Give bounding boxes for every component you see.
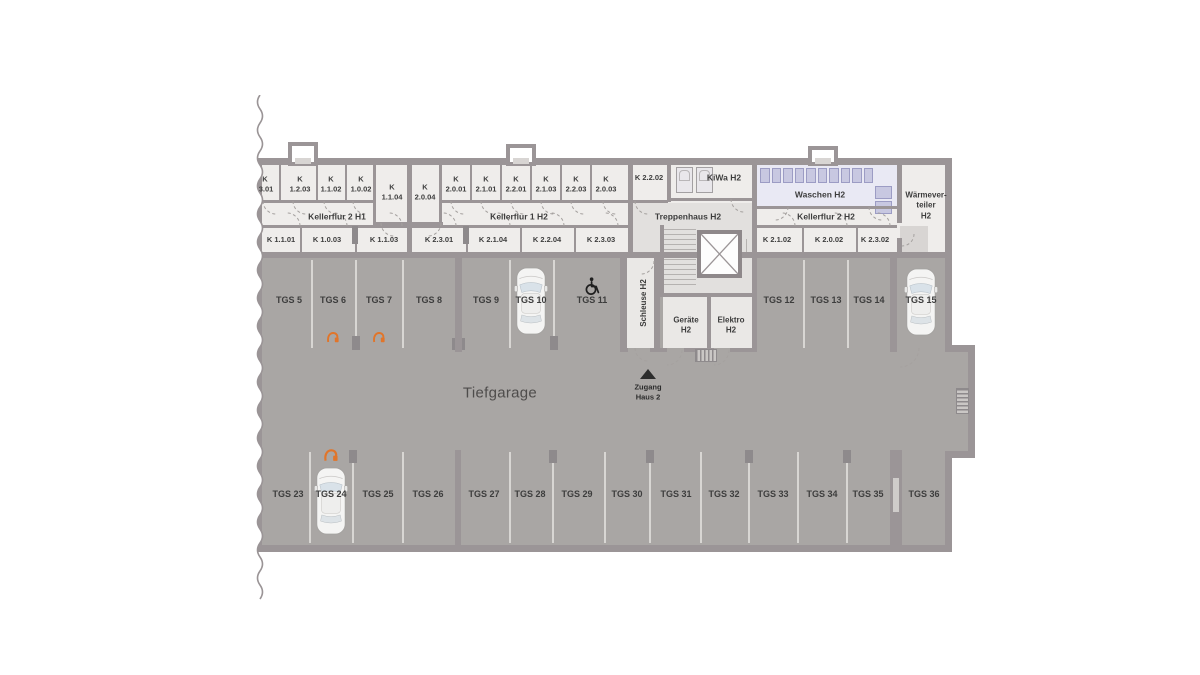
- room-label-k-1-0-02: K 1.0.02: [351, 174, 372, 194]
- room-label-geraete: Geräte H2: [673, 316, 698, 337]
- parking-spot-tgs-36: TGS 36: [908, 489, 939, 501]
- parking-spot-tgs-14: TGS 14: [853, 295, 884, 307]
- room-label-k-1-2-03: K 1.2.03: [290, 174, 311, 194]
- parking-divider: [797, 452, 799, 543]
- room-label-waschen: Waschen H2: [795, 189, 845, 200]
- wall: [373, 165, 376, 222]
- column: [349, 450, 357, 463]
- parking-divider: [352, 452, 354, 543]
- parking-spot-tgs-27: TGS 27: [468, 489, 499, 501]
- wall: [757, 225, 897, 228]
- wall: [530, 165, 532, 200]
- parking-spot-tgs-31: TGS 31: [660, 489, 691, 501]
- parking-divider: [803, 260, 805, 348]
- column: [549, 450, 557, 463]
- room-label-k-2-2-02: K 2.2.02: [635, 173, 663, 183]
- washing-machine-icon: [772, 168, 782, 183]
- corridor-label-kellerflur-1-h2: Kellerflur 1 H2: [490, 211, 548, 222]
- stroller-icon: [676, 167, 693, 193]
- parking-spot-tgs-32: TGS 32: [708, 489, 739, 501]
- wall: [671, 198, 752, 201]
- room-label-k-2-3-02: K 2.3.02: [861, 235, 889, 245]
- parking-spot-tgs-23: TGS 23: [272, 489, 303, 501]
- room-label-k-3-01: K .3.01: [257, 174, 274, 194]
- room-label-k-2-1-04: K 2.1.04: [479, 235, 507, 245]
- wall: [650, 348, 667, 352]
- ev-charging-icon: [323, 448, 338, 463]
- parking-divider: [847, 260, 849, 348]
- parking-spot-tgs-35: TGS 35: [852, 489, 883, 501]
- parking-divider: [604, 452, 606, 543]
- washing-machine-icon: [795, 168, 805, 183]
- wall: [897, 165, 902, 223]
- parking-spot-tgs-10: TGS 10: [515, 295, 546, 307]
- washing-machine-icon: [864, 168, 874, 183]
- parking-divider: [509, 452, 511, 543]
- washing-machine-icon: [841, 168, 851, 183]
- parking-divider: [649, 452, 651, 543]
- parking-spot-tgs-13: TGS 13: [810, 295, 841, 307]
- parking-spot-tgs-8: TGS 8: [416, 295, 442, 307]
- room-label-k-2-2-04: K 2.2.04: [533, 235, 561, 245]
- wall: [897, 238, 902, 252]
- washing-machine-icon: [806, 168, 816, 183]
- parking-spot-tgs-28: TGS 28: [514, 489, 545, 501]
- room-label-kiwa: KiWa H2: [707, 172, 741, 183]
- wall: [442, 200, 628, 203]
- room-label-k-2-2-03: K 2.2.03: [566, 174, 587, 194]
- wall: [890, 252, 897, 352]
- washing-machine-icon: [818, 168, 828, 183]
- column: [352, 336, 360, 350]
- wall: [660, 293, 752, 297]
- wall: [455, 258, 462, 352]
- washing-machine-icon: [760, 168, 770, 183]
- room-label-k-2-0-03: K 2.0.03: [596, 174, 617, 194]
- light-well-sill: [815, 158, 831, 164]
- parking-spot-tgs-33: TGS 33: [757, 489, 788, 501]
- floor-plan: K .3.01 K 1.2.03 K 1.1.02 K 1.0.02 K 1.1…: [0, 0, 1200, 675]
- wall: [757, 206, 897, 209]
- wall: [802, 228, 804, 252]
- room-label-k-2-0-02: K 2.0.02: [815, 235, 843, 245]
- washing-machine-icon: [783, 168, 793, 183]
- access-arrow-icon: [640, 369, 656, 379]
- ev-charging-icon: [372, 331, 385, 344]
- parking-divider: [402, 260, 404, 348]
- parking-spot-tgs-25: TGS 25: [362, 489, 393, 501]
- parking-divider: [402, 452, 404, 543]
- parking-spot-tgs-6: TGS 6: [320, 295, 346, 307]
- room-label-k-1-1-03: K 1.1.03: [370, 235, 398, 245]
- room-label-k-2-1-03: K 2.1.03: [536, 174, 557, 194]
- wall: [628, 165, 633, 252]
- wall: [590, 165, 592, 200]
- room-label-k-1-1-04: K 1.1.04: [382, 182, 403, 202]
- car-icon: [314, 460, 348, 542]
- wall: [752, 165, 757, 352]
- room-label-k-2-0-01: K 2.0.01: [446, 174, 467, 194]
- wall: [262, 225, 407, 228]
- room-label-k-1-1-02: K 1.1.02: [321, 174, 342, 194]
- wall: [520, 228, 522, 252]
- room-label-elektro: Elektro H2: [717, 316, 744, 337]
- elevator-icon: [697, 230, 742, 278]
- wall: [707, 296, 711, 348]
- parking-divider: [748, 452, 750, 543]
- parking-divider: [311, 260, 313, 348]
- wall: [890, 345, 897, 352]
- wall: [574, 228, 576, 252]
- room-label-k-2-1-02: K 2.1.02: [763, 235, 791, 245]
- garage-title: Tiefgarage: [463, 383, 537, 403]
- door-post: [463, 226, 469, 244]
- parking-spot-tgs-7: TGS 7: [366, 295, 392, 307]
- wall: [730, 348, 757, 352]
- corridor-label-kellerflur-2-h2: Kellerflur 2 H2: [797, 211, 855, 222]
- room-label-k-2-2-01: K 2.2.01: [506, 174, 527, 194]
- wall: [439, 165, 442, 222]
- parking-spot-tgs-12: TGS 12: [763, 295, 794, 307]
- access-label: Zugang Haus 2: [634, 382, 661, 402]
- wall: [667, 165, 671, 202]
- column: [745, 450, 753, 463]
- wall: [620, 348, 628, 352]
- wall: [455, 450, 461, 545]
- washing-machine-icon: [829, 168, 839, 183]
- wall: [945, 451, 975, 458]
- parking-divider: [700, 452, 702, 543]
- parking-spot-tgs-34: TGS 34: [806, 489, 837, 501]
- light-well-sill: [513, 158, 529, 164]
- room-label-waermeverteiler: Wärmever- teiler H2: [905, 190, 946, 221]
- wall: [654, 258, 660, 352]
- room-label-k-2-0-04: K 2.0.04: [415, 182, 436, 202]
- parking-spot-tgs-11: TGS 11: [577, 295, 608, 307]
- room-label-k-2-3-03: K 2.3.03: [587, 235, 615, 245]
- grate-icon: [956, 388, 969, 414]
- wall: [856, 228, 858, 252]
- wheelchair-icon: [585, 277, 600, 295]
- wall: [632, 200, 668, 203]
- waermeverteiler-unit: [900, 226, 928, 252]
- parking-divider: [309, 452, 311, 543]
- wall-niche: [893, 478, 899, 512]
- wall: [620, 258, 627, 352]
- wall: [300, 228, 302, 252]
- column: [646, 450, 654, 463]
- parking-spot-tgs-15: TGS 15: [905, 295, 936, 307]
- parking-divider: [552, 452, 554, 543]
- parking-divider: [553, 260, 555, 348]
- parking-spot-tgs-30: TGS 30: [611, 489, 642, 501]
- stairs-icon: [664, 229, 696, 289]
- parking-spot-tgs-26: TGS 26: [412, 489, 443, 501]
- door-post: [352, 226, 358, 244]
- grate-icon: [695, 349, 717, 362]
- wall: [470, 165, 472, 200]
- washing-machines-row: [760, 168, 876, 183]
- corridor-label-kellerflur-2-h1: Kellerflur 2 H1: [308, 211, 366, 222]
- room-label-k-2-3-01: K 2.3.01: [425, 235, 453, 245]
- light-well-sill: [295, 158, 311, 164]
- room-label-schleuse: Schleuse H2: [639, 279, 649, 327]
- parking-spot-tgs-29: TGS 29: [561, 489, 592, 501]
- wall: [279, 165, 281, 200]
- ev-charging-icon: [326, 331, 339, 344]
- room-label-k-1-1-01: K 1.1.01: [267, 235, 295, 245]
- wall: [345, 165, 347, 200]
- wall: [262, 200, 374, 203]
- parking-divider: [846, 452, 848, 543]
- parking-spot-tgs-9: TGS 9: [473, 295, 499, 307]
- parking-spot-tgs-24: TGS 24: [315, 489, 346, 501]
- column: [550, 336, 558, 350]
- wall: [945, 345, 975, 352]
- washing-machine-icon: [875, 186, 892, 199]
- room-label-treppenhaus: Treppenhaus H2: [655, 211, 721, 222]
- room-label-k-1-0-03: K 1.0.03: [313, 235, 341, 245]
- parking-divider: [509, 260, 511, 348]
- wall: [560, 165, 562, 200]
- room-label-k-2-1-01: K 2.1.01: [476, 174, 497, 194]
- wall: [660, 225, 664, 297]
- washing-machine-icon: [852, 168, 862, 183]
- wall: [500, 165, 502, 200]
- parking-spot-tgs-5: TGS 5: [276, 295, 302, 307]
- wall: [407, 165, 412, 252]
- wall: [262, 252, 945, 258]
- wall: [316, 165, 318, 200]
- column: [843, 450, 851, 463]
- parking-divider: [355, 260, 357, 348]
